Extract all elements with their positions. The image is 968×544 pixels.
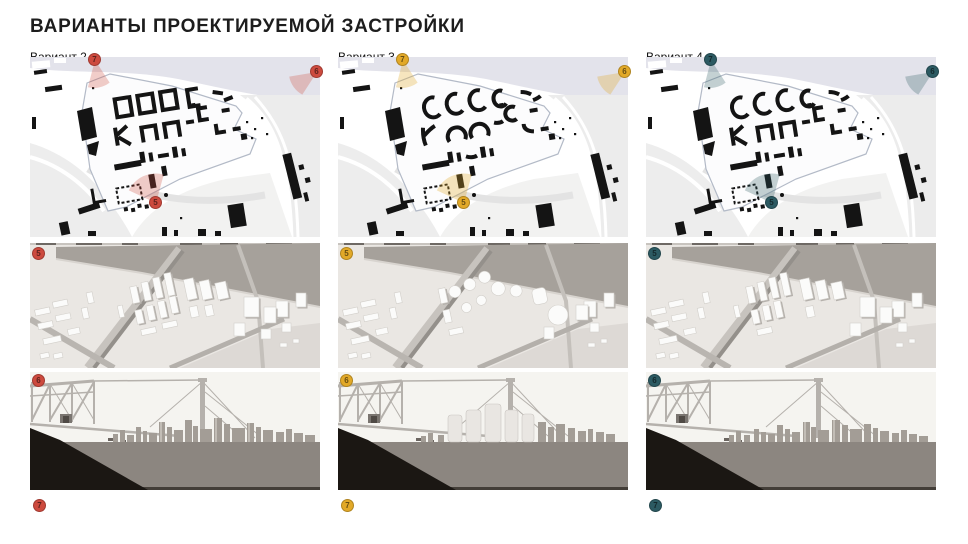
viewpoint-marker: 5 xyxy=(340,247,353,260)
viewpoint-marker: 6 xyxy=(926,65,939,78)
viewpoint-marker: 5 xyxy=(765,196,778,209)
viewpoint-marker: 6 xyxy=(340,374,353,387)
map-dot xyxy=(164,193,168,197)
viewpoint-marker: 7 xyxy=(341,499,354,512)
viewpoint-marker: 6 xyxy=(32,374,45,387)
viewpoint-marker: 6 xyxy=(310,65,323,78)
variant-column: Вариант 3 7 6 5 5 6 7 xyxy=(338,0,628,544)
viewpoint-marker: 5 xyxy=(32,247,45,260)
skyline-view xyxy=(646,372,936,490)
viewpoint-marker: 7 xyxy=(33,499,46,512)
axonometric-view xyxy=(338,243,628,368)
viewpoint-marker: 5 xyxy=(648,247,661,260)
map-dot xyxy=(780,193,784,197)
viewpoint-marker: 7 xyxy=(704,53,717,66)
viewpoint-marker: 6 xyxy=(648,374,661,387)
viewpoint-marker: 5 xyxy=(149,196,162,209)
skyline-view xyxy=(338,372,628,490)
map-dot xyxy=(472,193,476,197)
skyline-view xyxy=(30,372,320,490)
viewpoint-marker: 7 xyxy=(649,499,662,512)
viewpoint-marker: 5 xyxy=(457,196,470,209)
axonometric-view xyxy=(646,243,936,368)
viewpoint-marker: 7 xyxy=(88,53,101,66)
viewpoint-marker: 7 xyxy=(396,53,409,66)
axonometric-view xyxy=(30,243,320,368)
variant-column: Вариант 2 7 6 5 5 6 7 xyxy=(30,0,320,544)
variant-column: Вариант 4 7 6 5 5 6 7 xyxy=(646,0,936,544)
viewpoint-marker: 6 xyxy=(618,65,631,78)
presentation-board: ВАРИАНТЫ ПРОЕКТИРУЕМОЙ ЗАСТРОЙКИ Вариант… xyxy=(0,0,968,544)
